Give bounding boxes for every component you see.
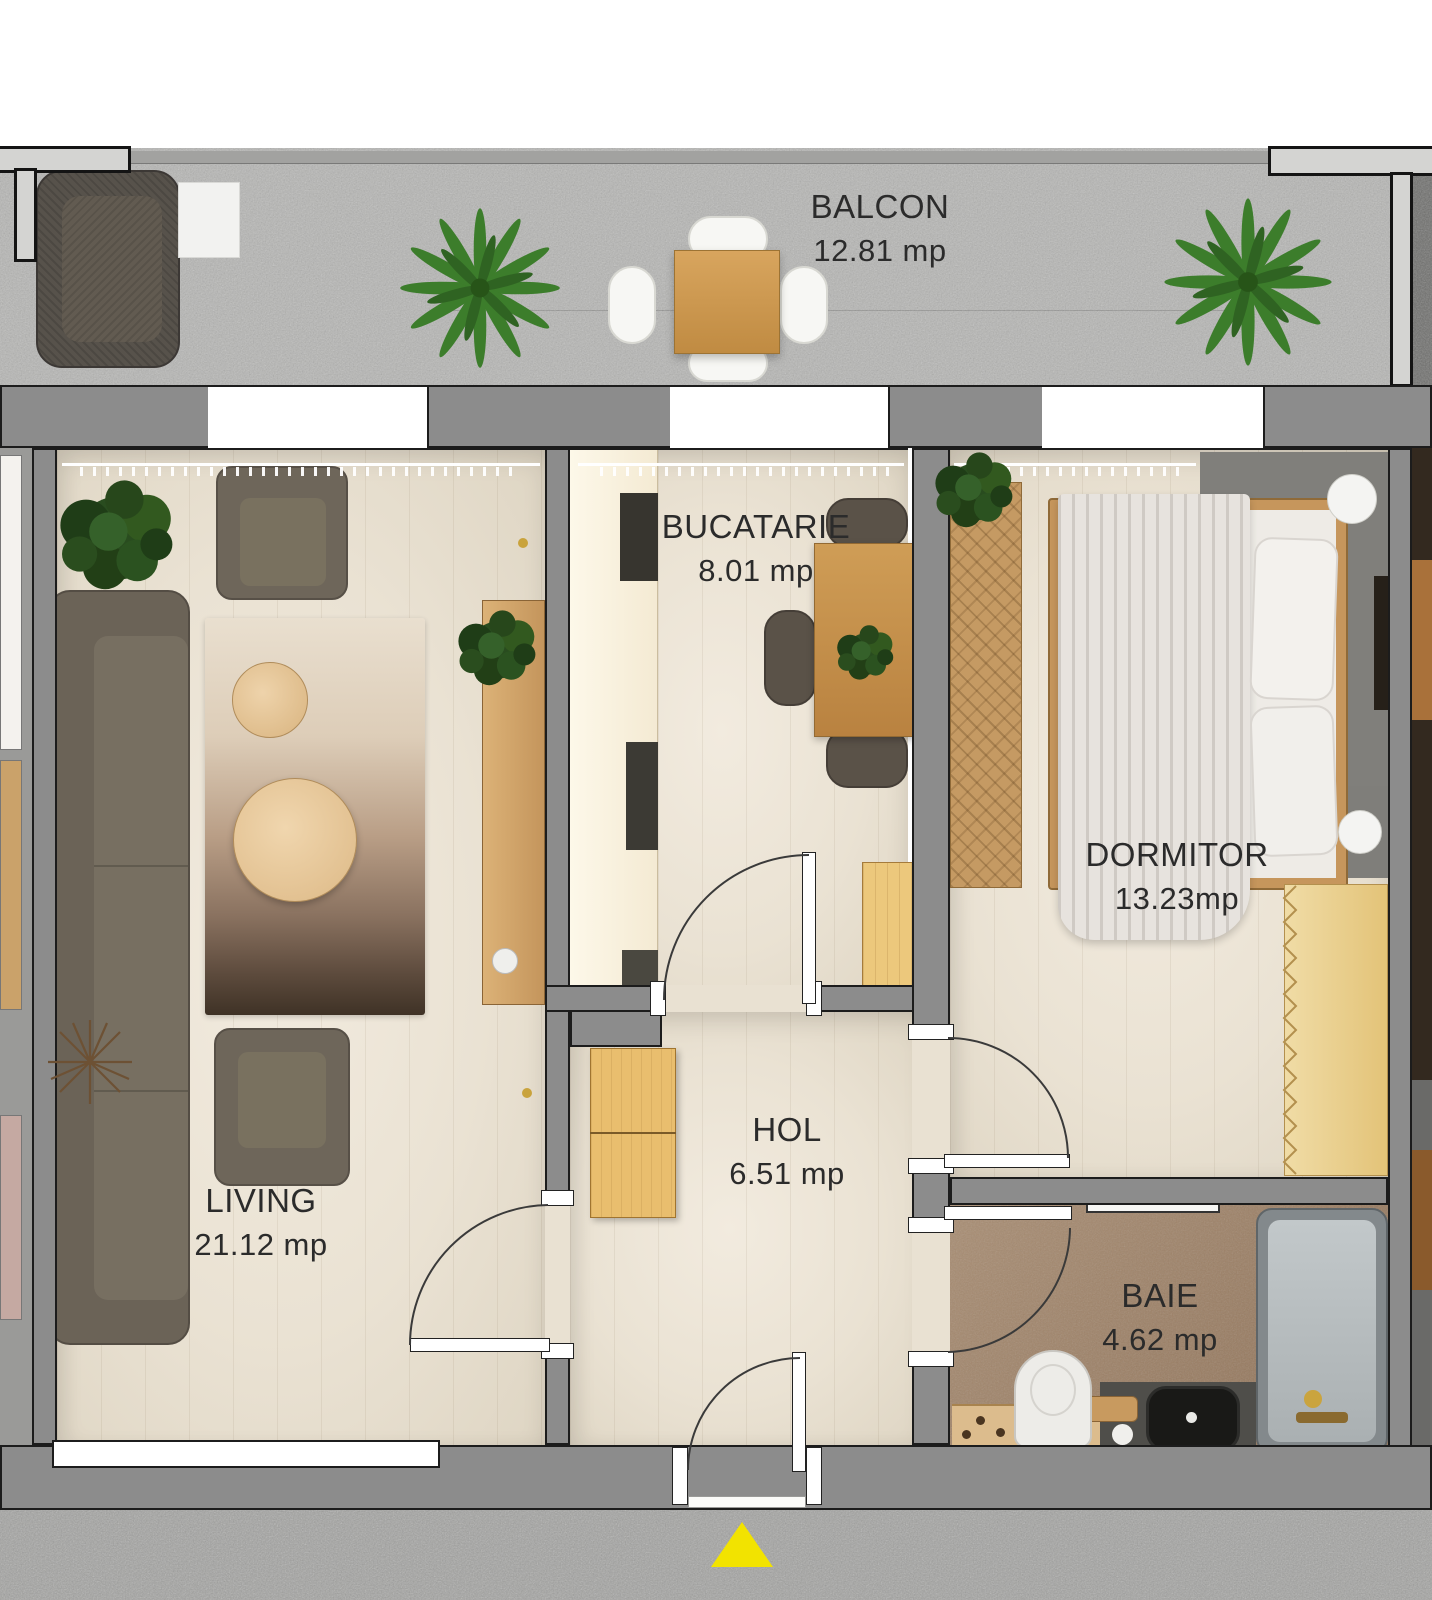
room-name: BAIE — [1102, 1274, 1218, 1318]
room-name: BUCATARIE — [662, 505, 850, 549]
curtain-folds — [600, 467, 890, 476]
room-area: 21.12 mp — [194, 1223, 327, 1267]
curtain — [62, 463, 540, 466]
door-jamb — [650, 981, 666, 1016]
bed-pillow — [1249, 537, 1339, 702]
entrance-marker-icon — [711, 1522, 773, 1567]
wall-pillar-hall — [570, 1012, 662, 1047]
neighbor-strip-left — [0, 448, 32, 1445]
room-label-dormitor: DORMITOR 13.23mp — [1085, 833, 1268, 921]
balcony-divider-right-stem — [1390, 172, 1413, 387]
exterior-wall-top-a — [0, 385, 210, 448]
room-area: 8.01 mp — [662, 549, 850, 593]
wall-sconce-gold — [518, 538, 528, 548]
curtain — [954, 463, 1196, 466]
room-area: 12.81 mp — [811, 229, 950, 273]
bath-decor-dot — [996, 1428, 1005, 1437]
wall-sconce-gold — [522, 1088, 532, 1098]
wall-bedroom-bathroom — [950, 1177, 1388, 1205]
exterior-wall-top-c — [888, 385, 1044, 448]
door-jamb — [908, 1024, 954, 1040]
tub-faucet-gold — [1304, 1390, 1322, 1408]
bedroom-door-opening — [912, 1040, 950, 1160]
entry-door-leaf — [792, 1352, 806, 1472]
console-vase — [492, 948, 518, 974]
nightstand-lamp — [1327, 474, 1377, 524]
nightstand-lamp — [1338, 810, 1382, 854]
bathroom-door-leaf — [944, 1206, 1072, 1220]
bath-decor-dot — [976, 1416, 985, 1425]
living-low-window — [52, 1440, 440, 1468]
bedroom-door-leaf — [944, 1154, 1070, 1168]
wall-right-exterior — [1388, 448, 1412, 1510]
room-area: 13.23mp — [1085, 877, 1268, 921]
balcony-table — [674, 250, 780, 354]
balcony-divider-left-stem — [14, 168, 37, 262]
herringbone-runner — [950, 482, 1022, 888]
door-jamb — [908, 1351, 954, 1367]
balcony-sofa-seat — [62, 196, 162, 342]
armchair-top-seat — [240, 498, 326, 586]
sofa-cushion-line — [94, 1090, 188, 1092]
exterior-wall-top-d — [1263, 385, 1432, 448]
neighbor-balcony-right — [1411, 176, 1432, 385]
balcony-slab-seam — [430, 310, 1230, 311]
curtain — [578, 463, 904, 466]
wardrobe — [1284, 884, 1388, 1176]
bath-decor-dot — [962, 1430, 971, 1439]
balcony-railing — [0, 151, 1432, 164]
toilet-seat-line — [1030, 1364, 1076, 1416]
curtain-folds — [80, 467, 520, 476]
kitchen-door-opening — [660, 985, 812, 1012]
exterior-wall-top-b — [427, 385, 672, 448]
living-console — [482, 600, 545, 1005]
tub-faucet-bar — [1296, 1412, 1348, 1423]
room-label-bucatarie: BUCATARIE 8.01 mp — [662, 505, 850, 593]
armchair-bottom-seat — [238, 1052, 326, 1148]
bath-tray — [1086, 1396, 1138, 1422]
wall-left-exterior — [32, 448, 57, 1445]
dining-chair-left — [764, 610, 816, 706]
kitchen-balcony-door-window — [670, 385, 890, 448]
sofa-cushion-line — [94, 865, 188, 867]
sofa-cushions — [94, 636, 188, 1300]
wall-tv — [1374, 576, 1388, 710]
coffee-table-large — [233, 778, 357, 902]
room-label-living: LIVING 21.12 mp — [194, 1179, 327, 1267]
room-name: BALCON — [811, 185, 950, 229]
entry-jamb — [806, 1447, 822, 1505]
entry-jamb — [672, 1447, 688, 1505]
bath-soap — [1112, 1424, 1133, 1445]
entry-threshold — [688, 1496, 806, 1508]
room-name: DORMITOR — [1085, 833, 1268, 877]
kitchen-cooktop — [620, 493, 658, 581]
neighbor-strip-right — [1412, 448, 1432, 1445]
balcony-chair-left — [608, 266, 656, 344]
room-name: HOL — [729, 1108, 845, 1152]
sink-faucet-dot — [1186, 1412, 1197, 1423]
door-jamb — [541, 1190, 574, 1206]
coffee-table-small — [232, 662, 308, 738]
living-balcony-window — [208, 385, 429, 448]
balcony-side-table — [178, 182, 240, 258]
floor-plan: BALCON 12.81 mp BUCATARIE 8.01 mp DORMIT… — [0, 0, 1432, 1600]
balcony-chair-right — [780, 266, 828, 344]
hall-cabinet-divider — [590, 1132, 676, 1134]
living-door-opening — [545, 1205, 570, 1345]
curtain-folds — [968, 467, 1182, 476]
bedroom-window — [1042, 385, 1265, 448]
bathroom-door-opening — [912, 1233, 950, 1353]
kitchen-sink-unit — [626, 742, 658, 850]
room-area: 4.62 mp — [1102, 1318, 1218, 1362]
bathtub-basin — [1268, 1220, 1376, 1442]
living-door-leaf — [410, 1338, 550, 1352]
room-label-hol: HOL 6.51 mp — [729, 1108, 845, 1196]
room-label-balcon: BALCON 12.81 mp — [811, 185, 950, 273]
room-area: 6.51 mp — [729, 1152, 845, 1196]
dining-chair-bottom — [826, 728, 908, 788]
kitchen-door-leaf — [802, 852, 816, 1004]
room-label-baie: BAIE 4.62 mp — [1102, 1274, 1218, 1362]
room-name: LIVING — [194, 1179, 327, 1223]
